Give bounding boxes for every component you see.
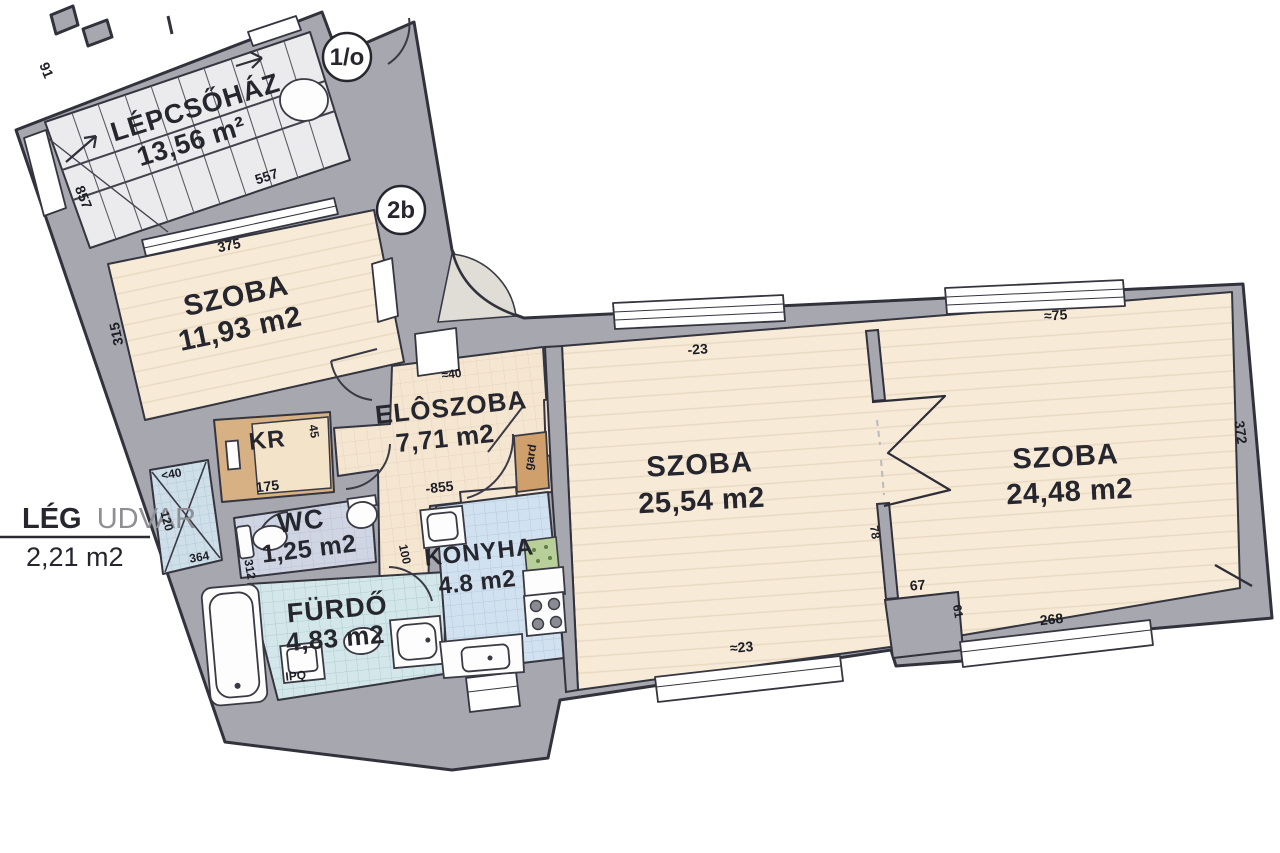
divider-pillar: [885, 592, 963, 658]
konyha-bottom-window: [466, 672, 520, 712]
washer-label: IPQ: [285, 668, 307, 684]
stove: [524, 592, 566, 636]
dim-divider-mid: 78: [867, 525, 883, 541]
room-area-szoba3: 24,48 m2: [1006, 473, 1134, 512]
dim-kr-bottom: 175: [255, 477, 280, 496]
bathtub: [201, 584, 268, 707]
dim-szoba3-top: ≈75: [1043, 306, 1068, 324]
bath-sink-large: [390, 616, 444, 668]
kr-slot: [226, 441, 240, 470]
legudvar-area: 2,21 m2: [26, 542, 124, 572]
wall-tick: [168, 16, 172, 34]
marker-1o: 1/o: [323, 33, 371, 81]
eloszoba-cabinet: gard: [514, 432, 549, 492]
floor-plan-canvas: GDN: [0, 0, 1280, 853]
room-label-szoba2: SZOBA: [646, 446, 754, 484]
kitchen-sink: [440, 634, 524, 678]
dim-szoba2-bottom: ≈23: [729, 638, 754, 656]
legudvar-label-bold: LÉG: [22, 501, 82, 535]
dim-pillar-right: 61: [950, 604, 966, 620]
dim-szoba2-top: -23: [687, 340, 709, 357]
dim-eloszoba-bottom: -855: [425, 478, 455, 497]
room-area-szoba2: 25,54 m2: [638, 482, 766, 521]
legudvar-label-rest: UDVAR: [97, 503, 196, 535]
marker-2b: 2b: [377, 186, 425, 234]
dim-divider-low: 67: [909, 576, 926, 593]
marker-1o-label: 1/o: [330, 44, 365, 71]
stair-column: [280, 79, 328, 121]
dim-szoba3-right: 372: [1231, 420, 1250, 446]
dim-szoba3-bottom: 268: [1039, 610, 1064, 628]
wall-notch: [83, 20, 112, 46]
dim-entry-opening: ≈40: [441, 366, 463, 382]
marker-2b-label: 2b: [387, 197, 415, 224]
floor-plan-page: GDN: [0, 0, 1280, 853]
room-label-szoba3: SZOBA: [1012, 438, 1120, 476]
room-label-kr: KR: [248, 425, 287, 456]
wall-notch: [51, 6, 78, 34]
dim-kr-right: 45: [306, 424, 322, 440]
dim-stair-left-top: 91: [36, 60, 57, 81]
